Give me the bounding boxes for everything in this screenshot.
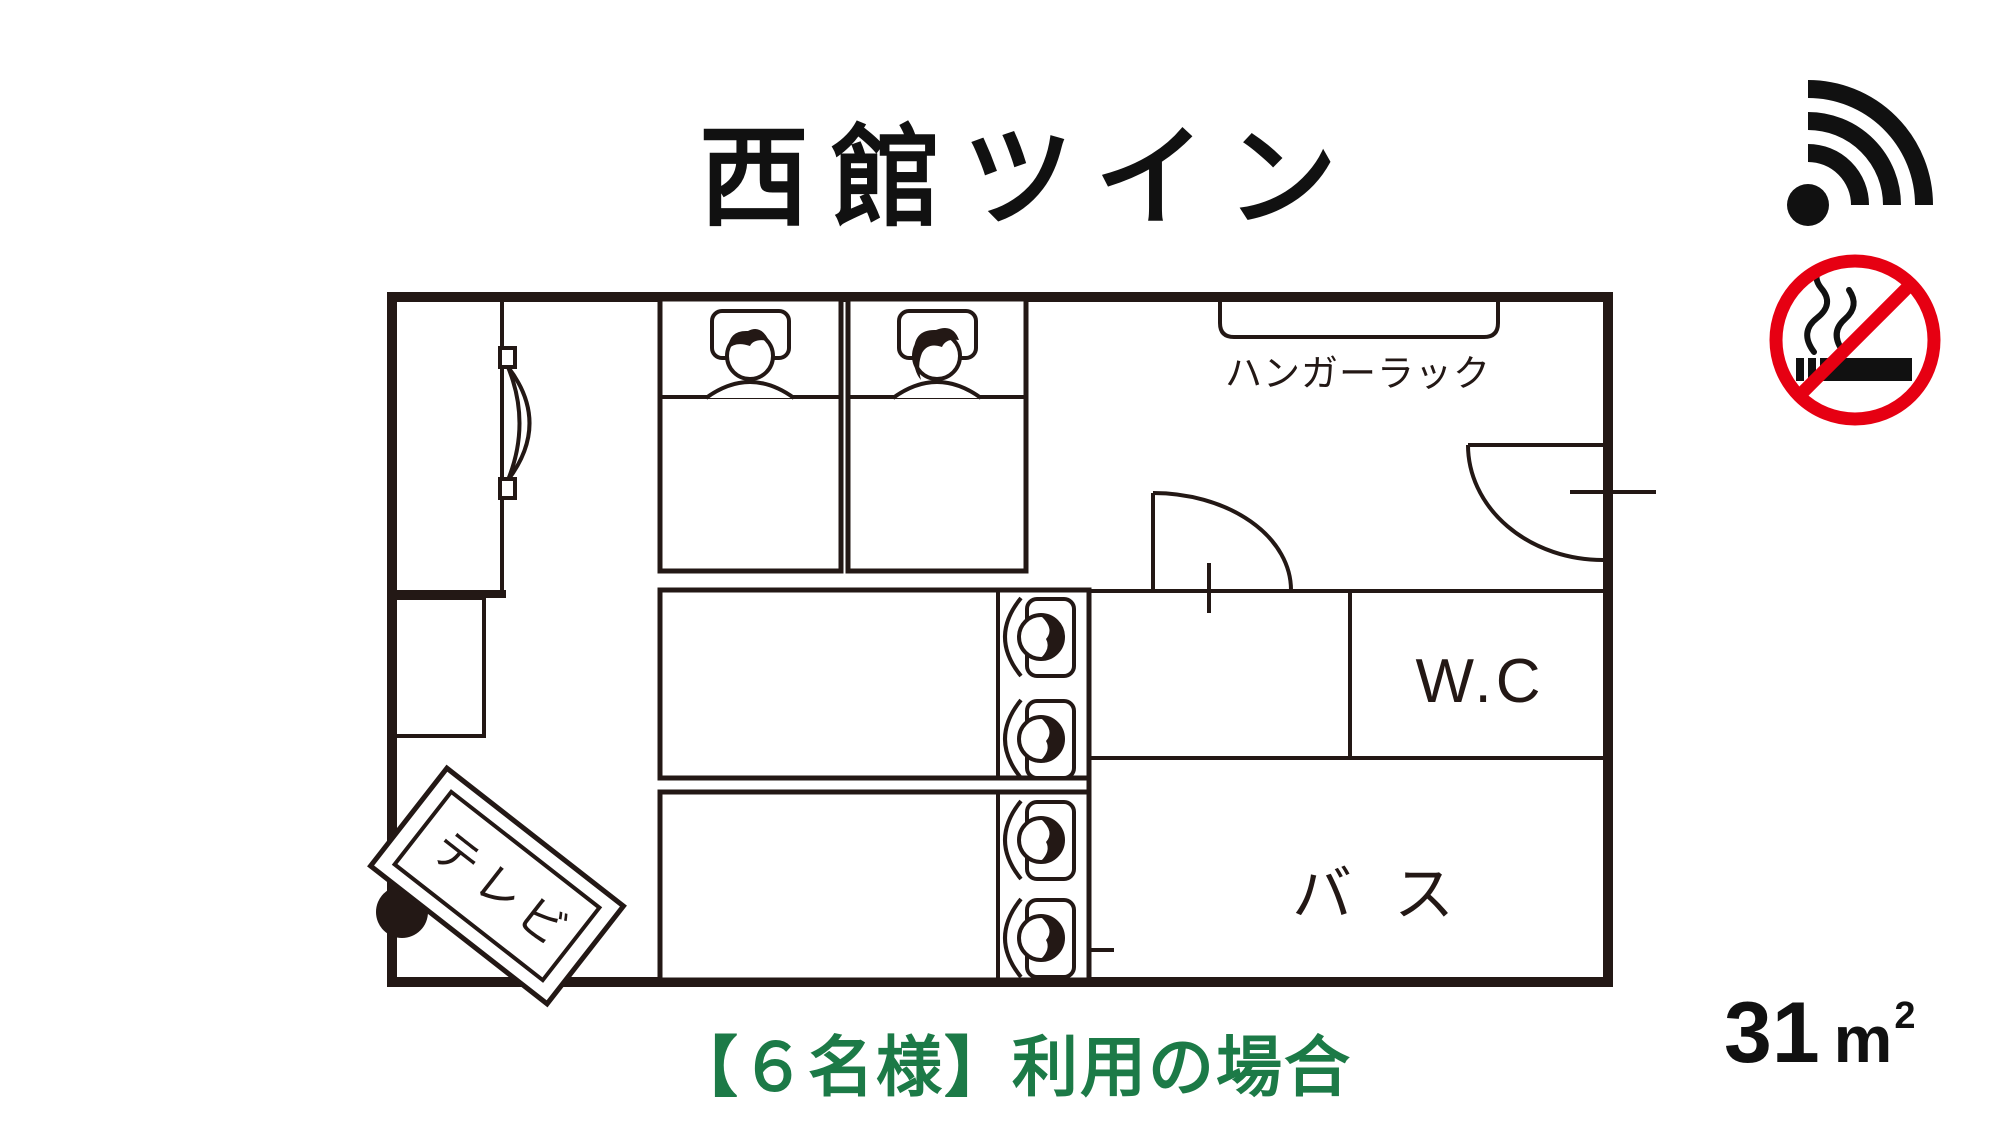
desk bbox=[394, 598, 484, 736]
hanger-rack bbox=[1220, 299, 1498, 337]
cigarette-icon bbox=[1796, 268, 1912, 381]
hanger-rack-label: ハンガーラック bbox=[1188, 343, 1528, 397]
entrance-door bbox=[1468, 445, 1656, 560]
no-smoking-icon bbox=[1776, 261, 1934, 419]
page-title: 西館ツイン bbox=[507, 88, 1529, 248]
guest-6 bbox=[1005, 899, 1074, 977]
mirror-door bbox=[500, 348, 530, 498]
capacity-caption: 【６名様】利用の場合 bbox=[512, 1014, 1512, 1110]
closet bbox=[390, 299, 506, 594]
guest-3 bbox=[1005, 598, 1074, 676]
wifi-icon bbox=[1787, 89, 1924, 226]
room-area: 31 m 2 bbox=[1724, 984, 1916, 1083]
area-unit: m bbox=[1834, 1001, 1893, 1077]
area-exponent: 2 bbox=[1894, 995, 1915, 1038]
room-infographic: 西館ツイン ハンガーラック W.C バス テレビ 【６名様】利用の場合 31 m… bbox=[0, 0, 2000, 1125]
wc-label: W.C bbox=[1355, 646, 1605, 717]
guest-4 bbox=[1005, 700, 1074, 778]
bath-label: バス bbox=[1202, 846, 1544, 933]
guest-5 bbox=[1005, 801, 1074, 879]
interior-door bbox=[1153, 493, 1291, 613]
area-value: 31 bbox=[1724, 984, 1820, 1083]
